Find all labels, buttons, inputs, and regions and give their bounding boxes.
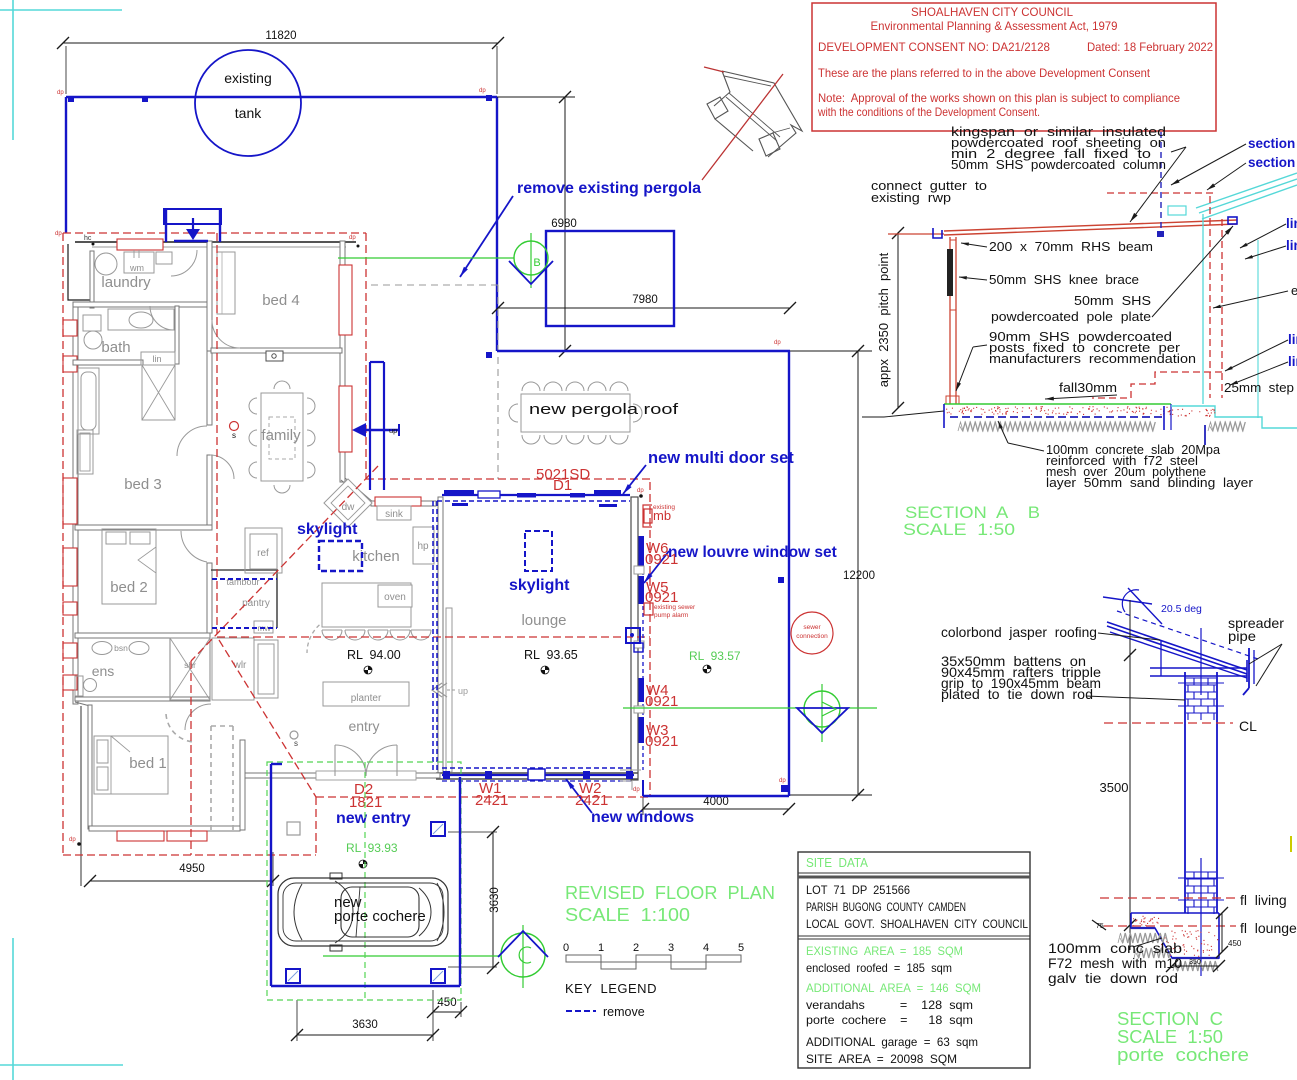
svg-text:0921: 0921 bbox=[645, 733, 678, 750]
svg-text:new windows: new windows bbox=[591, 809, 694, 826]
svg-text:350: 350 bbox=[1189, 959, 1201, 966]
svg-text:new multi door set: new multi door set bbox=[648, 449, 794, 467]
svg-text:fl lounge: fl lounge bbox=[1240, 920, 1297, 936]
svg-text:SHOALHAVEN CITY COUNCIL: SHOALHAVEN CITY COUNCIL bbox=[911, 5, 1073, 19]
svg-text:galv tie down rod: galv tie down rod bbox=[1048, 970, 1178, 986]
svg-text:s: s bbox=[232, 431, 236, 440]
svg-text:kitchen: kitchen bbox=[352, 548, 400, 565]
svg-text:DEVELOPMENT CONSENT NO: DA21/2: DEVELOPMENT CONSENT NO: DA21/2128 bbox=[818, 40, 1050, 54]
svg-text:skylight: skylight bbox=[297, 521, 358, 538]
svg-text:porte cochere: porte cochere bbox=[1117, 1045, 1249, 1065]
svg-text:e: e bbox=[1291, 283, 1297, 298]
svg-text:6980: 6980 bbox=[551, 218, 577, 230]
svg-text:Environmental Planning & Asses: Environmental Planning & Assessment Act,… bbox=[871, 19, 1118, 33]
svg-text:new pergola roof: new pergola roof bbox=[529, 402, 679, 418]
svg-text:wm: wm bbox=[129, 263, 144, 273]
svg-text:dp: dp bbox=[57, 90, 64, 96]
svg-text:SCALE 1:50: SCALE 1:50 bbox=[1117, 1027, 1223, 1047]
svg-text:450: 450 bbox=[1228, 939, 1242, 948]
svg-text:entry: entry bbox=[348, 718, 379, 734]
svg-text:dp: dp bbox=[779, 778, 786, 784]
svg-text:manufacturers recommendation: manufacturers recommendation bbox=[989, 351, 1196, 366]
svg-text:family: family bbox=[261, 427, 301, 444]
svg-text:dp: dp bbox=[633, 787, 640, 793]
svg-text:porte cochere: porte cochere bbox=[334, 908, 426, 925]
svg-text:RL 93.93: RL 93.93 bbox=[346, 841, 398, 855]
svg-text:4000: 4000 bbox=[703, 796, 729, 808]
svg-text:SCALE 1:50: SCALE 1:50 bbox=[903, 521, 1015, 539]
svg-text:ADDITIONAL garage = 63 sqm: ADDITIONAL garage = 63 sqm bbox=[806, 1035, 978, 1049]
svg-text:20.5 deg: 20.5 deg bbox=[1161, 603, 1202, 615]
svg-text:fall30mm: fall30mm bbox=[1059, 380, 1117, 395]
svg-text:shr: shr bbox=[184, 660, 196, 670]
svg-text:2421: 2421 bbox=[575, 792, 608, 809]
svg-text:11820: 11820 bbox=[265, 30, 296, 42]
svg-text:50mm SHS powdercoated colum: 50mm SHS powdercoated column bbox=[951, 157, 1166, 172]
svg-text:D1: D1 bbox=[553, 477, 572, 494]
svg-text:100mm conc slab: 100mm conc slab bbox=[1048, 940, 1182, 956]
svg-text:5: 5 bbox=[738, 942, 744, 954]
svg-text:3630: 3630 bbox=[489, 887, 501, 913]
svg-text:bsn: bsn bbox=[114, 643, 128, 653]
svg-text:RL 93.65: RL 93.65 bbox=[524, 648, 578, 662]
svg-text:0: 0 bbox=[563, 942, 569, 954]
svg-text:LOCAL GOVT. SHOALHAVEN CITY: LOCAL GOVT. SHOALHAVEN CITY COUNCIL bbox=[806, 917, 1028, 931]
svg-text:1: 1 bbox=[598, 942, 604, 954]
svg-text:porte cochere = 18 s: porte cochere = 18 sqm bbox=[806, 1013, 973, 1027]
svg-text:hc: hc bbox=[84, 235, 92, 242]
svg-text:SITE AREA = 20098 SQM: SITE AREA = 20098 SQM bbox=[806, 1052, 957, 1066]
svg-text:3630: 3630 bbox=[352, 1019, 378, 1031]
svg-text:4950: 4950 bbox=[179, 863, 205, 875]
svg-text:pantry: pantry bbox=[242, 598, 270, 609]
svg-text:dp: dp bbox=[637, 488, 644, 494]
svg-text:lin: lin bbox=[1286, 238, 1297, 253]
svg-text:sink: sink bbox=[385, 509, 404, 520]
svg-text:mb: mb bbox=[653, 508, 671, 523]
svg-text:EXISTING AREA = 185 SQM: EXISTING AREA = 185 SQM bbox=[806, 944, 963, 958]
svg-text:4: 4 bbox=[703, 942, 709, 954]
svg-text:Note: Approval of the works s: Note: Approval of the works shown on thi… bbox=[818, 91, 1180, 105]
svg-text:plated to tie down rod: plated to tie down rod bbox=[941, 686, 1093, 702]
svg-text:7980: 7980 bbox=[632, 294, 658, 306]
svg-text:lin: lin bbox=[1288, 354, 1297, 369]
svg-text:0921: 0921 bbox=[645, 551, 678, 568]
svg-text:75: 75 bbox=[1096, 923, 1104, 930]
svg-text:powdercoated pole plate: powdercoated pole plate bbox=[991, 309, 1151, 324]
svg-text:new louvre window set: new louvre window set bbox=[668, 544, 837, 561]
svg-text:3500: 3500 bbox=[1100, 780, 1129, 795]
svg-text:ADDITIONAL AREA = 146 SQM: ADDITIONAL AREA = 146 SQM bbox=[806, 981, 981, 995]
svg-text:fl living: fl living bbox=[1240, 892, 1287, 908]
svg-text:pump alarm: pump alarm bbox=[654, 612, 688, 619]
svg-text:F72 mesh with m10: F72 mesh with m10 bbox=[1048, 955, 1182, 971]
svg-text:dw: dw bbox=[342, 502, 356, 513]
svg-text:oven: oven bbox=[384, 592, 406, 603]
svg-text:200 x 70mm RHS beam: 200 x 70mm RHS beam bbox=[989, 239, 1153, 254]
svg-text:section: section bbox=[1248, 155, 1295, 170]
svg-text:appx 2350 pitch point: appx 2350 pitch point bbox=[876, 252, 891, 387]
svg-text:existing rwp: existing rwp bbox=[871, 190, 951, 205]
svg-text:bed 1: bed 1 bbox=[129, 755, 167, 772]
svg-text:lin: lin bbox=[152, 354, 161, 364]
svg-text:tank: tank bbox=[235, 105, 262, 121]
svg-text:dp: dp bbox=[69, 837, 76, 843]
svg-text:skylight: skylight bbox=[509, 577, 570, 594]
svg-text:existing: existing bbox=[224, 70, 271, 86]
svg-text:lin: lin bbox=[1286, 216, 1297, 231]
svg-text:RL 93.57: RL 93.57 bbox=[689, 649, 741, 663]
svg-text:sewer: sewer bbox=[803, 624, 821, 631]
svg-text:PARISH BUGONG COUNTY CAMDEN: PARISH BUGONG COUNTY CAMDEN bbox=[806, 900, 966, 914]
svg-text:These are the plans referred t: These are the plans referred to in the a… bbox=[818, 66, 1151, 80]
svg-text:KEY LEGEND: KEY LEGEND bbox=[565, 981, 657, 996]
svg-text:pipe: pipe bbox=[1228, 628, 1256, 644]
svg-text:lounge: lounge bbox=[521, 612, 566, 629]
svg-text:connection: connection bbox=[796, 633, 828, 640]
svg-text:ref: ref bbox=[257, 548, 269, 559]
svg-text:lin: lin bbox=[1288, 332, 1297, 347]
svg-text:2: 2 bbox=[633, 942, 639, 954]
svg-text:ens: ens bbox=[92, 663, 115, 679]
svg-text:up: up bbox=[389, 426, 397, 435]
svg-text:verandahs = 128 s: verandahs = 128 sqm bbox=[806, 998, 973, 1012]
svg-text:with the conditions of the Dev: with the conditions of the Development C… bbox=[817, 105, 1040, 119]
svg-text:Dated: 18 February 2022: Dated: 18 February 2022 bbox=[1087, 40, 1213, 54]
svg-text:dp: dp bbox=[774, 340, 781, 346]
svg-text:up: up bbox=[458, 686, 468, 696]
svg-text:new entry: new entry bbox=[336, 810, 411, 827]
svg-text:colorbond jasper roofing: colorbond jasper roofing bbox=[941, 624, 1097, 640]
svg-text:remove existing pergola: remove existing pergola bbox=[517, 180, 701, 197]
svg-text:SECTION A B: SECTION A B bbox=[905, 504, 1040, 522]
svg-text:laundry: laundry bbox=[101, 274, 151, 291]
svg-text:3: 3 bbox=[668, 942, 674, 954]
svg-text:bed 3: bed 3 bbox=[124, 476, 162, 493]
svg-text:hp: hp bbox=[417, 541, 429, 552]
svg-text:bed 4: bed 4 bbox=[262, 292, 300, 309]
svg-text:1821: 1821 bbox=[349, 794, 382, 811]
svg-text:enclosed roofed = 185 sqm: enclosed roofed = 185 sqm bbox=[806, 961, 952, 975]
svg-text:dp: dp bbox=[349, 235, 356, 241]
svg-text:layer 50mm sand blinding l: layer 50mm sand blinding layer bbox=[1046, 475, 1254, 490]
svg-text:bed 2: bed 2 bbox=[110, 579, 148, 596]
svg-text:SITE DATA: SITE DATA bbox=[806, 856, 869, 870]
svg-text:0921: 0921 bbox=[645, 589, 678, 606]
svg-text:50mm SHS knee brace: 50mm SHS knee brace bbox=[989, 272, 1139, 287]
svg-text:CL: CL bbox=[1239, 718, 1257, 734]
svg-text:SECTION C: SECTION C bbox=[1117, 1009, 1223, 1029]
svg-text:SCALE 1:100: SCALE 1:100 bbox=[565, 905, 690, 925]
svg-text:450: 450 bbox=[437, 997, 456, 1009]
svg-text:s: s bbox=[294, 739, 298, 748]
svg-text:12200: 12200 bbox=[843, 570, 875, 582]
svg-text:LOT 71 DP 251566: LOT 71 DP 251566 bbox=[806, 883, 910, 897]
svg-text:REVISED FLOOR PLAN: REVISED FLOOR PLAN bbox=[565, 883, 775, 903]
svg-text:dp: dp bbox=[479, 88, 486, 94]
svg-text:remove: remove bbox=[603, 1005, 645, 1019]
svg-text:2421: 2421 bbox=[475, 792, 508, 809]
svg-text:bath: bath bbox=[101, 339, 130, 356]
svg-text:section: section bbox=[1248, 136, 1295, 151]
svg-text:dp: dp bbox=[55, 231, 62, 237]
svg-text:RL 94.00: RL 94.00 bbox=[347, 648, 401, 662]
svg-text:planter: planter bbox=[351, 693, 382, 704]
svg-text:50mm SHS: 50mm SHS bbox=[1074, 293, 1151, 308]
svg-text:B: B bbox=[533, 257, 540, 269]
